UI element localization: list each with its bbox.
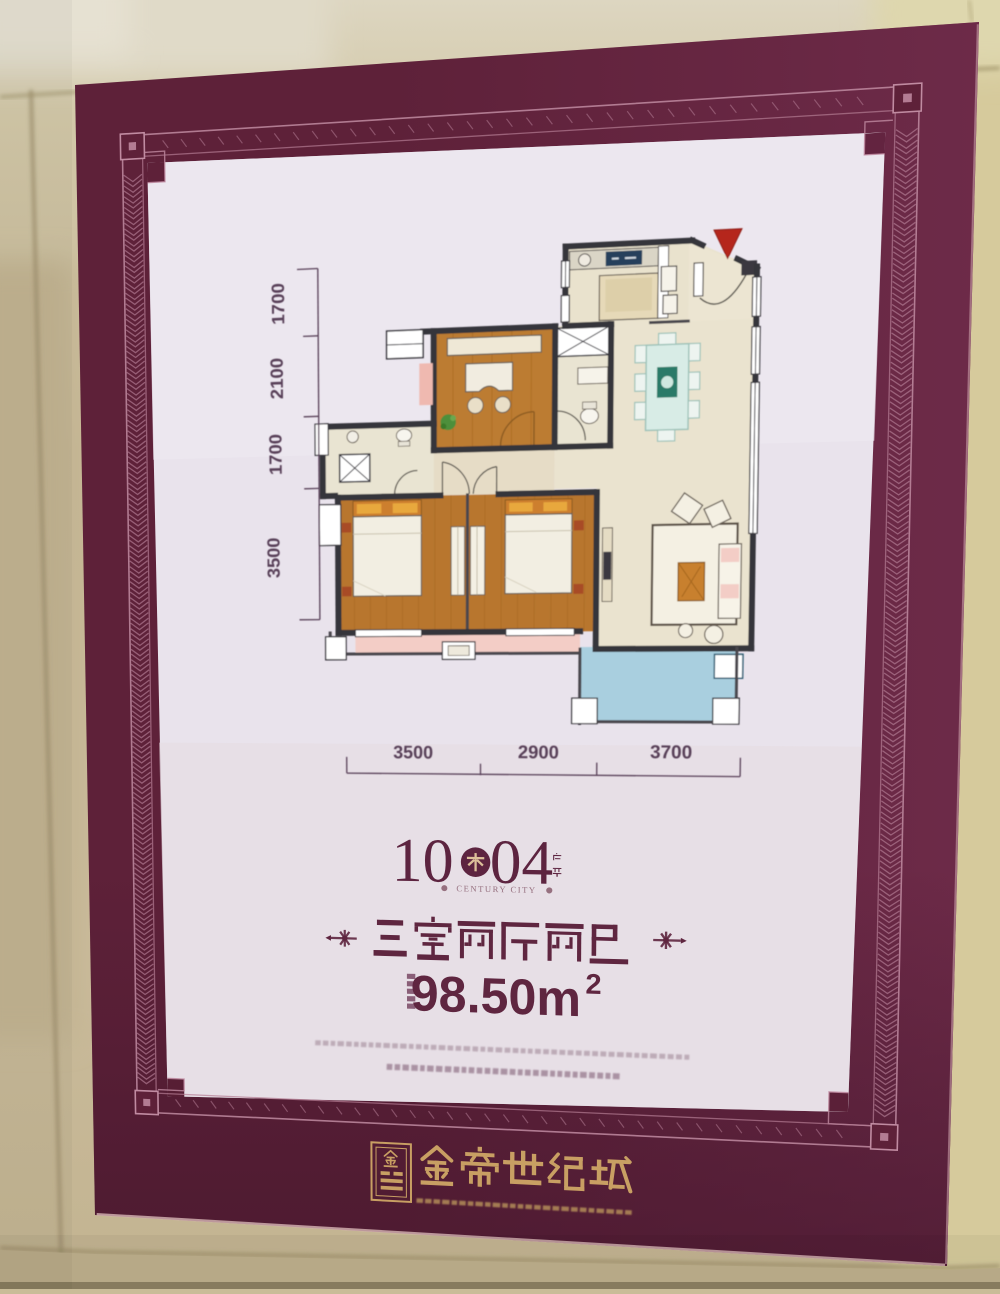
svg-text:1700: 1700 bbox=[266, 434, 286, 476]
svg-text:CENTURY CITY: CENTURY CITY bbox=[456, 883, 536, 895]
svg-text:98.50m: 98.50m bbox=[411, 964, 581, 1027]
svg-text:2100: 2100 bbox=[267, 358, 287, 400]
svg-text:1700: 1700 bbox=[267, 283, 288, 326]
svg-text:2900: 2900 bbox=[518, 741, 559, 762]
svg-text:3700: 3700 bbox=[650, 741, 692, 762]
svg-text:3500: 3500 bbox=[393, 742, 433, 762]
svg-text:2: 2 bbox=[585, 969, 601, 1001]
svg-text:3500: 3500 bbox=[264, 537, 284, 578]
